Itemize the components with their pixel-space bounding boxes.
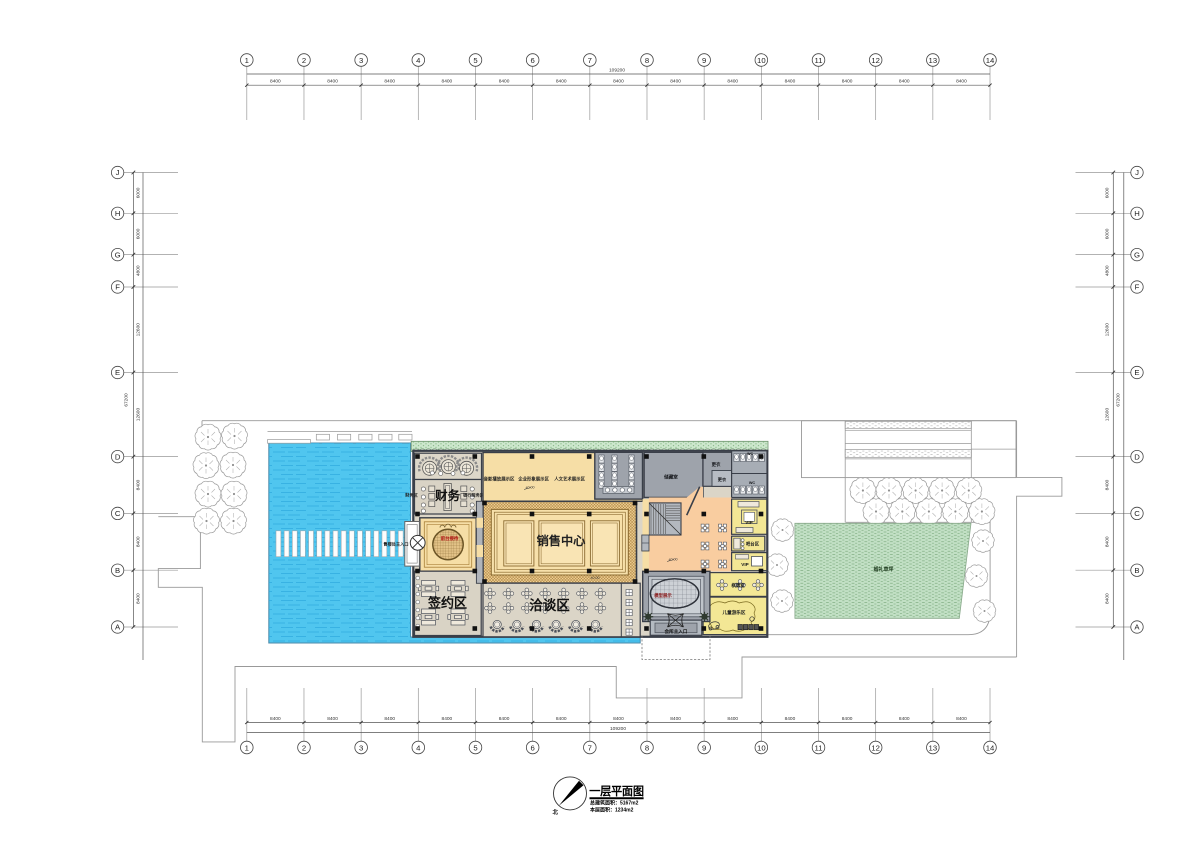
svg-text:银行服务区: 银行服务区	[463, 491, 485, 498]
svg-text:人文艺术展示区: 人文艺术展示区	[554, 476, 585, 483]
svg-text:7: 7	[588, 56, 592, 65]
svg-text:1: 1	[245, 56, 249, 65]
svg-text:4: 4	[416, 743, 421, 752]
svg-text:8400: 8400	[556, 716, 567, 722]
svg-text:D: D	[115, 452, 121, 461]
svg-text:12600: 12600	[136, 408, 142, 422]
svg-text:婚礼草坪: 婚礼草坪	[873, 566, 893, 573]
svg-text:财务区: 财务区	[405, 491, 418, 498]
svg-text:A: A	[1134, 623, 1140, 632]
svg-text:6000: 6000	[1105, 228, 1111, 239]
svg-text:8400: 8400	[136, 479, 142, 490]
svg-text:8400: 8400	[327, 716, 338, 722]
svg-text:棋牌室: 棋牌室	[731, 582, 745, 589]
svg-text:F: F	[1135, 283, 1140, 292]
svg-text:13: 13	[929, 56, 938, 65]
svg-text:12: 12	[871, 56, 880, 65]
svg-text:更衣: 更衣	[712, 461, 721, 468]
svg-text:8400: 8400	[613, 78, 624, 84]
svg-text:8400: 8400	[785, 716, 796, 722]
svg-text:B: B	[115, 566, 120, 575]
svg-text:音影播放展示区: 音影播放展示区	[484, 476, 515, 483]
svg-text:±0.00: ±0.00	[591, 576, 600, 580]
svg-text:8: 8	[645, 743, 649, 752]
svg-text:2: 2	[302, 56, 306, 65]
svg-text:3: 3	[359, 56, 363, 65]
svg-text:企业形象展示区: 企业形象展示区	[517, 476, 549, 483]
svg-text:9: 9	[702, 56, 706, 65]
svg-text:10: 10	[757, 743, 766, 752]
svg-text:8400: 8400	[384, 716, 395, 722]
svg-text:8400: 8400	[1105, 479, 1111, 490]
svg-text:1: 1	[245, 743, 249, 752]
svg-text:8400: 8400	[956, 716, 967, 722]
svg-text:J: J	[1135, 168, 1139, 177]
svg-text:8400: 8400	[727, 78, 738, 84]
svg-text:会所主入口: 会所主入口	[664, 628, 688, 635]
svg-text:VIP: VIP	[745, 520, 752, 525]
svg-text:8400: 8400	[1105, 593, 1111, 604]
svg-text:14: 14	[986, 56, 995, 65]
svg-text:儿童游乐区: 儿童游乐区	[722, 609, 746, 616]
svg-text:5: 5	[473, 56, 477, 65]
svg-text:C: C	[115, 509, 121, 518]
svg-text:A: A	[115, 623, 121, 632]
svg-text:6000: 6000	[136, 187, 142, 198]
svg-text:前台接待: 前台接待	[441, 535, 459, 542]
svg-text:E: E	[1134, 368, 1139, 377]
svg-text:8400: 8400	[442, 716, 453, 722]
svg-text:8400: 8400	[442, 78, 453, 84]
svg-text:F: F	[115, 283, 120, 292]
svg-text:12600: 12600	[1105, 408, 1111, 422]
svg-text:5: 5	[473, 743, 477, 752]
svg-text:12: 12	[871, 743, 880, 752]
svg-text:67200: 67200	[124, 393, 130, 407]
svg-text:一层平面图: 一层平面图	[589, 785, 644, 798]
svg-text:8400: 8400	[670, 716, 681, 722]
svg-text:北: 北	[553, 808, 559, 816]
svg-text:11: 11	[815, 743, 823, 752]
svg-text:4800: 4800	[1105, 265, 1111, 276]
svg-text:本层面积：1234m2: 本层面积：1234m2	[589, 806, 634, 813]
svg-text:4: 4	[416, 56, 421, 65]
svg-text:G: G	[1134, 250, 1140, 259]
svg-text:8400: 8400	[136, 536, 142, 547]
svg-text:WC: WC	[749, 481, 756, 485]
svg-text:8400: 8400	[613, 716, 624, 722]
svg-text:12600: 12600	[1105, 323, 1111, 337]
svg-text:J: J	[116, 168, 120, 177]
svg-text:6000: 6000	[1105, 187, 1111, 198]
svg-text:8400: 8400	[956, 78, 967, 84]
svg-text:14: 14	[986, 743, 995, 752]
svg-text:E: E	[115, 368, 120, 377]
svg-text:WC: WC	[747, 452, 754, 456]
svg-text:4800: 4800	[136, 265, 142, 276]
svg-text:11: 11	[815, 56, 823, 65]
svg-text:H: H	[115, 209, 121, 218]
svg-text:109200: 109200	[609, 68, 625, 74]
svg-text:6: 6	[531, 56, 535, 65]
svg-text:销售中心: 销售中心	[537, 533, 587, 548]
svg-text:8400: 8400	[785, 78, 796, 84]
svg-text:更衣: 更衣	[718, 476, 727, 483]
svg-text:8400: 8400	[670, 78, 681, 84]
svg-text:2: 2	[302, 743, 306, 752]
svg-text:9: 9	[702, 743, 706, 752]
svg-text:8400: 8400	[499, 716, 510, 722]
svg-text:8400: 8400	[842, 716, 853, 722]
svg-text:8400: 8400	[384, 78, 395, 84]
svg-text:财务: 财务	[434, 488, 461, 503]
svg-text:储藏室: 储藏室	[664, 474, 678, 481]
svg-text:8400: 8400	[1105, 536, 1111, 547]
svg-text:8400: 8400	[899, 78, 910, 84]
svg-text:8400: 8400	[727, 716, 738, 722]
svg-text:8400: 8400	[499, 78, 510, 84]
svg-text:7: 7	[588, 743, 592, 752]
svg-text:10: 10	[757, 56, 766, 65]
svg-text:签约区: 签约区	[427, 596, 467, 611]
svg-text:D: D	[1134, 452, 1140, 461]
svg-text:67200: 67200	[1116, 393, 1122, 407]
svg-text:B: B	[1134, 566, 1139, 575]
svg-text:售楼处主入口: 售楼处主入口	[383, 541, 408, 548]
svg-text:6: 6	[531, 743, 535, 752]
svg-text:8400: 8400	[270, 78, 281, 84]
svg-text:8400: 8400	[136, 593, 142, 604]
svg-text:洽谈区: 洽谈区	[529, 597, 570, 613]
svg-text:12600: 12600	[136, 323, 142, 337]
svg-text:8: 8	[645, 56, 649, 65]
svg-text:13: 13	[929, 743, 938, 752]
svg-text:吧台区: 吧台区	[746, 541, 760, 548]
svg-text:VIP: VIP	[741, 562, 748, 567]
svg-text:8400: 8400	[270, 716, 281, 722]
svg-text:8400: 8400	[899, 716, 910, 722]
svg-text:8400: 8400	[556, 78, 567, 84]
svg-text:G: G	[115, 250, 121, 259]
svg-text:109200: 109200	[610, 726, 626, 732]
svg-text:模型展示: 模型展示	[654, 592, 672, 599]
svg-text:H: H	[1134, 209, 1140, 218]
svg-text:总建筑面积：5167m2: 总建筑面积：5167m2	[590, 799, 639, 806]
svg-text:8400: 8400	[327, 78, 338, 84]
svg-text:3: 3	[359, 743, 363, 752]
svg-text:8400: 8400	[842, 78, 853, 84]
svg-text:6000: 6000	[136, 228, 142, 239]
svg-text:C: C	[1134, 509, 1140, 518]
